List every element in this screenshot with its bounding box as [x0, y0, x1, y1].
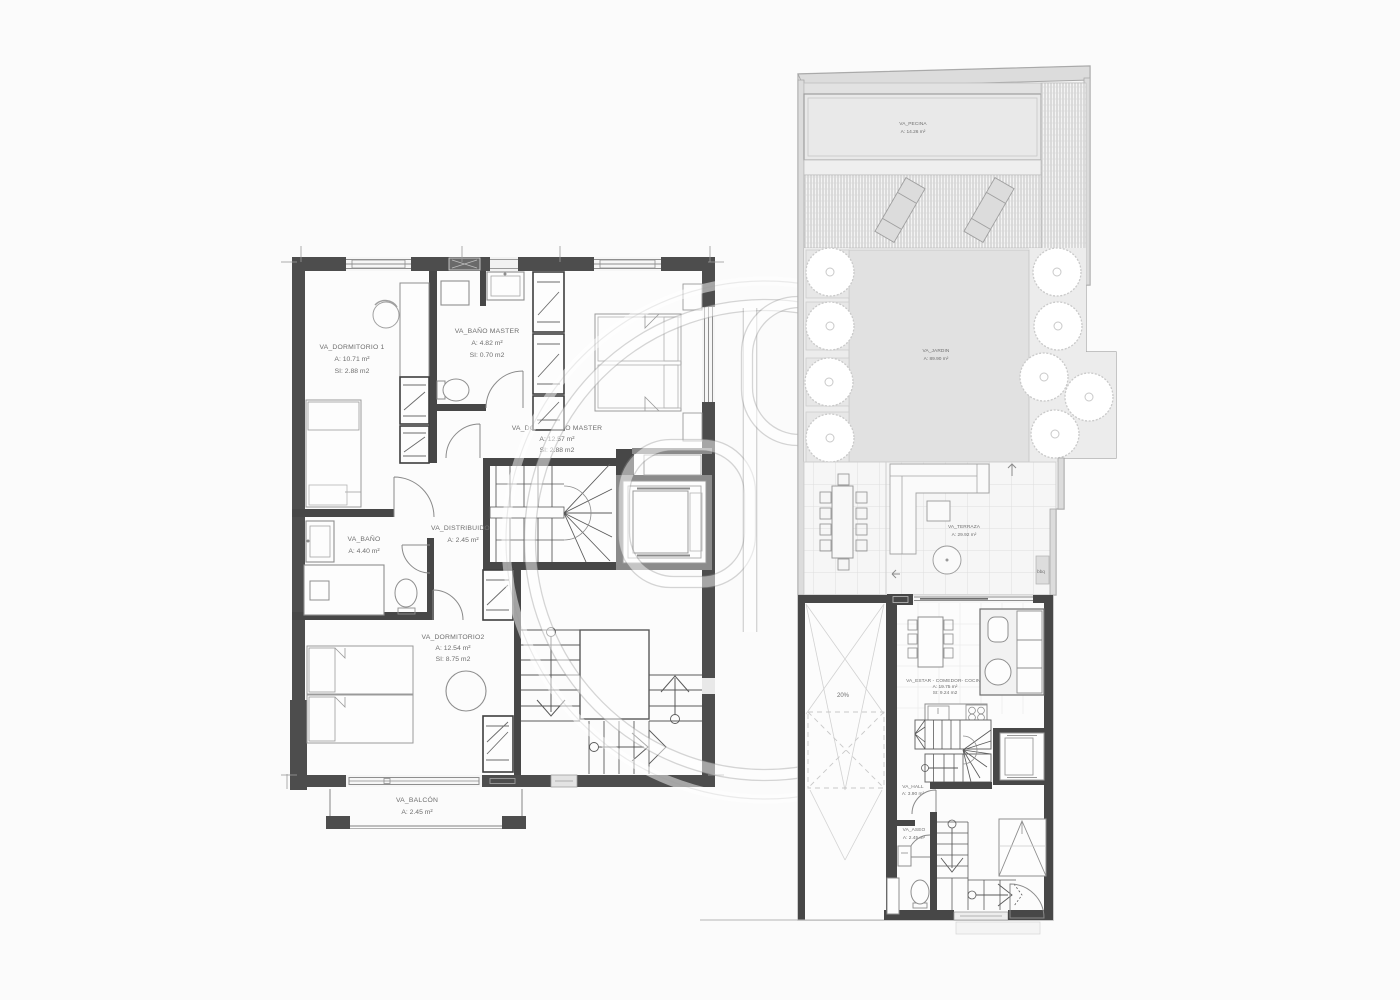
svg-text:VA_TERRAZA: VA_TERRAZA — [948, 524, 981, 530]
svg-text:A: 19.75 m²: A: 19.75 m² — [933, 684, 958, 690]
svg-text:A: 89.90 m²: A: 89.90 m² — [924, 356, 949, 362]
svg-text:VA_DISTRIBUIDOR: VA_DISTRIBUIDOR — [431, 525, 495, 532]
svg-text:A: 12.54 m²: A: 12.54 m² — [435, 645, 471, 652]
svg-text:VA_ASEO: VA_ASEO — [903, 827, 926, 833]
svg-text:VA_PECINA: VA_PECINA — [899, 121, 927, 127]
svg-text:SI: 8.75 m2: SI: 8.75 m2 — [436, 656, 471, 663]
svg-text:A: 2.45 m²: A: 2.45 m² — [903, 835, 926, 841]
svg-text:A: 4.40 m²: A: 4.40 m² — [348, 548, 380, 555]
svg-text:A: 3.90 m²: A: 3.90 m² — [902, 791, 925, 797]
svg-text:VA_BAÑO: VA_BAÑO — [347, 534, 380, 543]
svg-text:SI: 0.70 m2: SI: 0.70 m2 — [470, 352, 505, 359]
svg-text:SI: 2.88 m2: SI: 2.88 m2 — [335, 368, 370, 375]
svg-text:A: 29.92 m²: A: 29.92 m² — [952, 532, 977, 538]
svg-text:20%: 20% — [837, 693, 850, 699]
svg-text:VA_JARDIN: VA_JARDIN — [923, 348, 950, 354]
svg-text:VA_ESTAR - COMEDOR- COCINA: VA_ESTAR - COMEDOR- COCINA — [906, 678, 985, 684]
svg-text:VA_BALCÓN: VA_BALCÓN — [396, 795, 438, 804]
svg-text:A: 14.26 m²: A: 14.26 m² — [901, 129, 926, 135]
svg-text:VA_DORMITORIO2: VA_DORMITORIO2 — [422, 634, 485, 641]
svg-text:bbq: bbq — [1037, 569, 1045, 574]
svg-text:VA_HALL: VA_HALL — [902, 784, 924, 790]
svg-text:A: 4.82 m²: A: 4.82 m² — [471, 340, 503, 347]
svg-text:VA_BAÑO MASTER: VA_BAÑO MASTER — [455, 326, 520, 335]
svg-text:A: 2.45 m²: A: 2.45 m² — [447, 537, 479, 544]
svg-text:A: 2.45 m²: A: 2.45 m² — [401, 809, 433, 816]
svg-text:VA_DORMITORIO 1: VA_DORMITORIO 1 — [319, 344, 384, 351]
svg-text:SI: 9.24 m2: SI: 9.24 m2 — [933, 690, 958, 696]
svg-text:A: 10.71 m²: A: 10.71 m² — [334, 356, 370, 363]
